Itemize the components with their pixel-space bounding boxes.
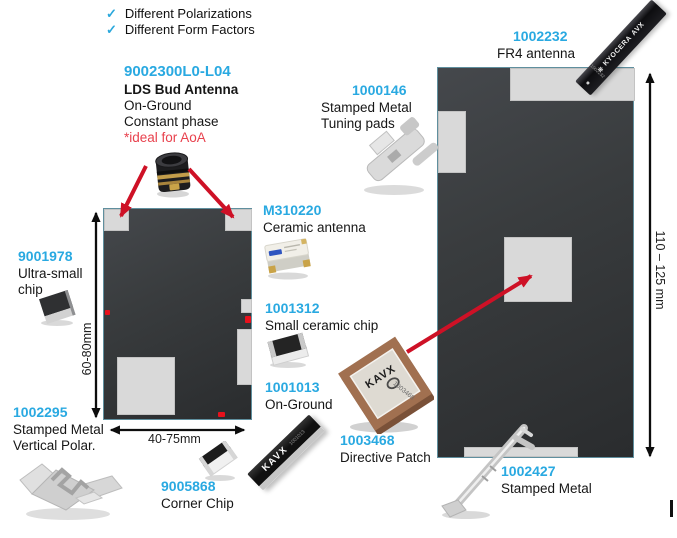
product-desc-line: Directive Patch: [340, 450, 431, 466]
stamped-vertical-image: [16, 446, 126, 522]
part-number: 9005868: [161, 478, 234, 496]
slide: ✓ Different Polarizations ✓ Different Fo…: [0, 0, 677, 538]
product-label-directive-patch: 1003468 Directive Patch: [340, 432, 431, 466]
checklist-item: ✓ Different Polarizations: [106, 6, 252, 22]
small-ceramic-chip-image: [264, 329, 312, 369]
part-number: 1003468: [340, 432, 431, 450]
feed-point-dot: [245, 316, 251, 323]
product-label-ceramic-antenna: M310220 Ceramic antenna: [263, 202, 366, 236]
directive-patch-image: KAVX 1003468: [334, 334, 434, 434]
ground-pad: [237, 329, 252, 385]
product-desc-line: Constant phase: [124, 114, 238, 130]
product-desc-line: Ultra-small: [18, 266, 83, 282]
product-desc-line: Vertical Polar.: [13, 438, 104, 454]
ceramic-antenna-image: [262, 234, 314, 280]
product-desc-line: On-Ground: [265, 397, 333, 413]
product-desc-line: Tuning pads: [321, 116, 412, 132]
kavx-part-marking: 1001013: [288, 429, 306, 447]
product-label-lds-bud: 9002300L0-L04 LDS Bud Antenna On-Ground …: [124, 63, 238, 147]
check-icon: ✓: [106, 6, 117, 22]
product-desc-line: Stamped Metal: [501, 481, 592, 497]
part-number: 1002232: [513, 28, 575, 46]
part-number: 9001978: [18, 248, 83, 266]
checklist-item: ✓ Different Form Factors: [106, 22, 255, 38]
product-label-corner-chip: 9005868 Corner Chip: [161, 478, 234, 512]
mounting-hole: [586, 81, 590, 85]
corner-chip-image: [198, 441, 242, 483]
feed-point-dot: [105, 310, 110, 315]
ground-pad: [241, 299, 252, 313]
product-desc-line: Stamped Metal: [321, 100, 412, 116]
product-label-ultra-small-chip: 9001978 Ultra-small chip: [18, 248, 83, 298]
product-desc-line: FR4 antenna: [497, 46, 575, 62]
product-label-stamped-metal: 1002427 Stamped Metal: [501, 463, 592, 497]
fr4-brand-marking-2: AVX: [630, 21, 646, 37]
part-number: M310220: [263, 202, 366, 220]
dimension-label-right-height: 110 – 125 mm: [653, 220, 667, 320]
product-desc-line: On-Ground: [124, 98, 238, 114]
product-desc-line: Stamped Metal: [13, 422, 104, 438]
ground-pad: [104, 209, 129, 231]
ground-pad: [510, 68, 635, 101]
part-number: 1001013: [265, 379, 333, 397]
checklist-item-label: Different Form Factors: [125, 22, 255, 37]
product-note: *ideal for AoA: [124, 130, 238, 146]
part-number: 1002427: [501, 463, 592, 481]
feed-point-dot: [218, 412, 225, 417]
ground-pad: [504, 237, 572, 302]
ground-pad: [117, 357, 175, 415]
ground-pad: [225, 209, 252, 231]
part-number: 1002295: [13, 404, 104, 422]
lds-bud-antenna-image: [152, 148, 194, 198]
dimension-label-left-width: 40-75mm: [148, 432, 201, 446]
dimension-label-left-height: 60-80mm: [80, 299, 94, 399]
product-desc-line: Ceramic antenna: [263, 220, 366, 236]
product-label-fr4-antenna: 1002232 FR4 antenna: [497, 28, 575, 62]
pcb-board-large: [437, 67, 634, 458]
product-name: LDS Bud Antenna: [124, 82, 238, 98]
on-ground-stick-image: KAVX 1001013: [247, 414, 325, 490]
ground-pad: [438, 111, 466, 173]
fr4-brand-marking: KYOCERA: [602, 35, 633, 68]
check-icon: ✓: [106, 22, 117, 38]
part-number: 9002300L0-L04: [124, 63, 238, 82]
kavx-brand-marking: KAVX: [260, 444, 290, 474]
product-label-tuning-pads: 1000146 Stamped Metal Tuning pads: [321, 82, 412, 132]
product-desc-line: chip: [18, 282, 83, 298]
product-label-stamped-vertical: 1002295 Stamped Metal Vertical Polar.: [13, 404, 104, 454]
part-number: 1000146: [352, 82, 412, 100]
product-label-on-ground: 1001013 On-Ground: [265, 379, 333, 413]
product-label-small-ceramic-chip: 1001312 Small ceramic chip: [265, 300, 378, 334]
part-number: 1001312: [265, 300, 378, 318]
pcb-board-small: [103, 208, 252, 420]
product-desc-line: Small ceramic chip: [265, 318, 378, 334]
product-desc-line: Corner Chip: [161, 496, 234, 512]
checklist-item-label: Different Polarizations: [125, 6, 252, 21]
edge-fragment: [670, 500, 673, 517]
